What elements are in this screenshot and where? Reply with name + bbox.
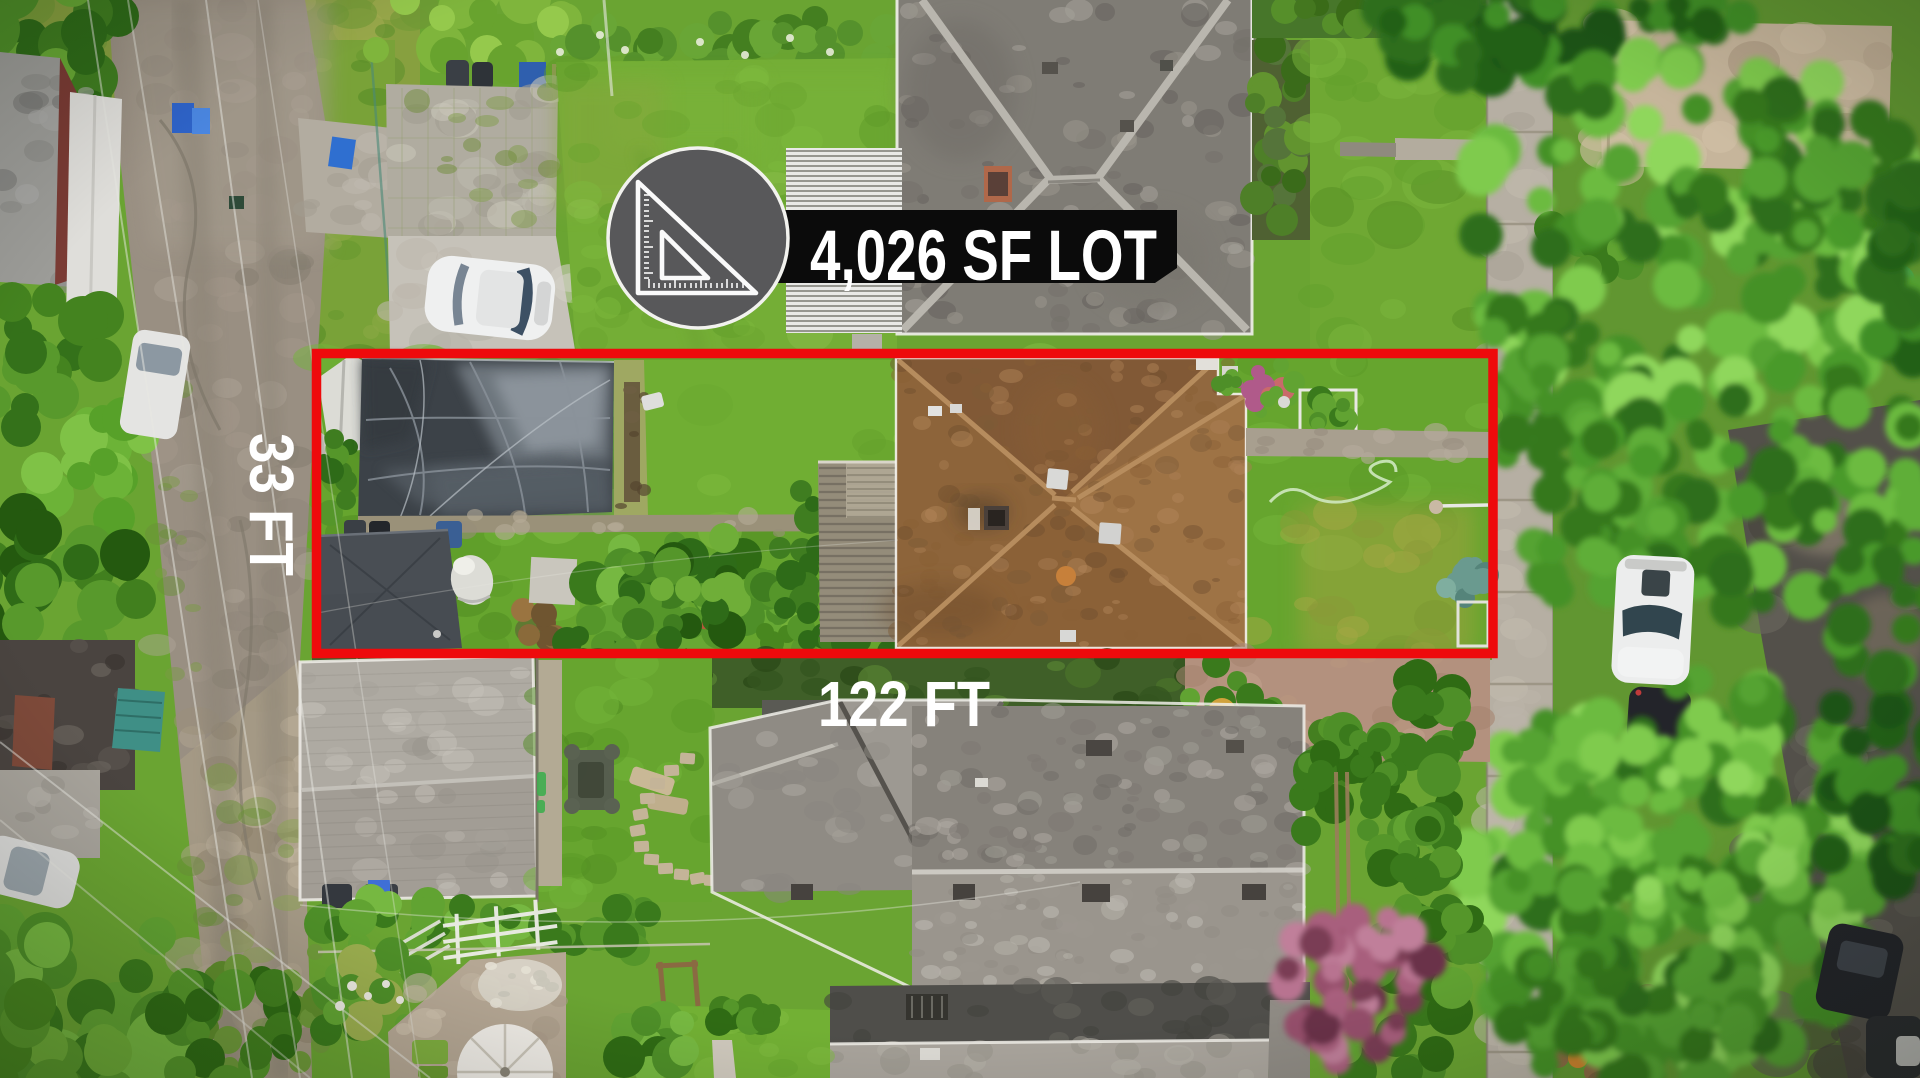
svg-text:33 FT: 33 FT xyxy=(236,433,305,576)
svg-text:4,026 SF LOT: 4,026 SF LOT xyxy=(810,217,1157,296)
svg-text:122 FT: 122 FT xyxy=(818,668,990,740)
